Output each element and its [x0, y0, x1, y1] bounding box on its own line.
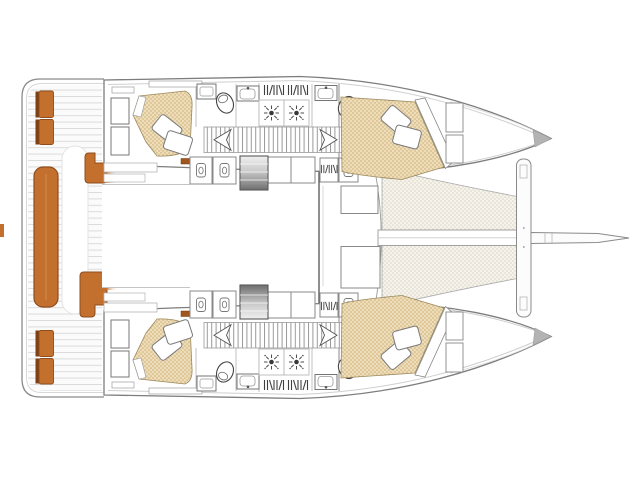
forward-seat-locker-port — [341, 186, 378, 214]
forward-seat-locker-starboard — [341, 247, 380, 289]
catamaran-floorplan-image — [0, 0, 640, 480]
forward-crossbeam — [517, 159, 532, 317]
transom-step-cushion — [0, 224, 4, 237]
saloon — [102, 184, 319, 288]
floorplan-svg — [0, 0, 640, 480]
saloon-floor — [102, 184, 319, 288]
